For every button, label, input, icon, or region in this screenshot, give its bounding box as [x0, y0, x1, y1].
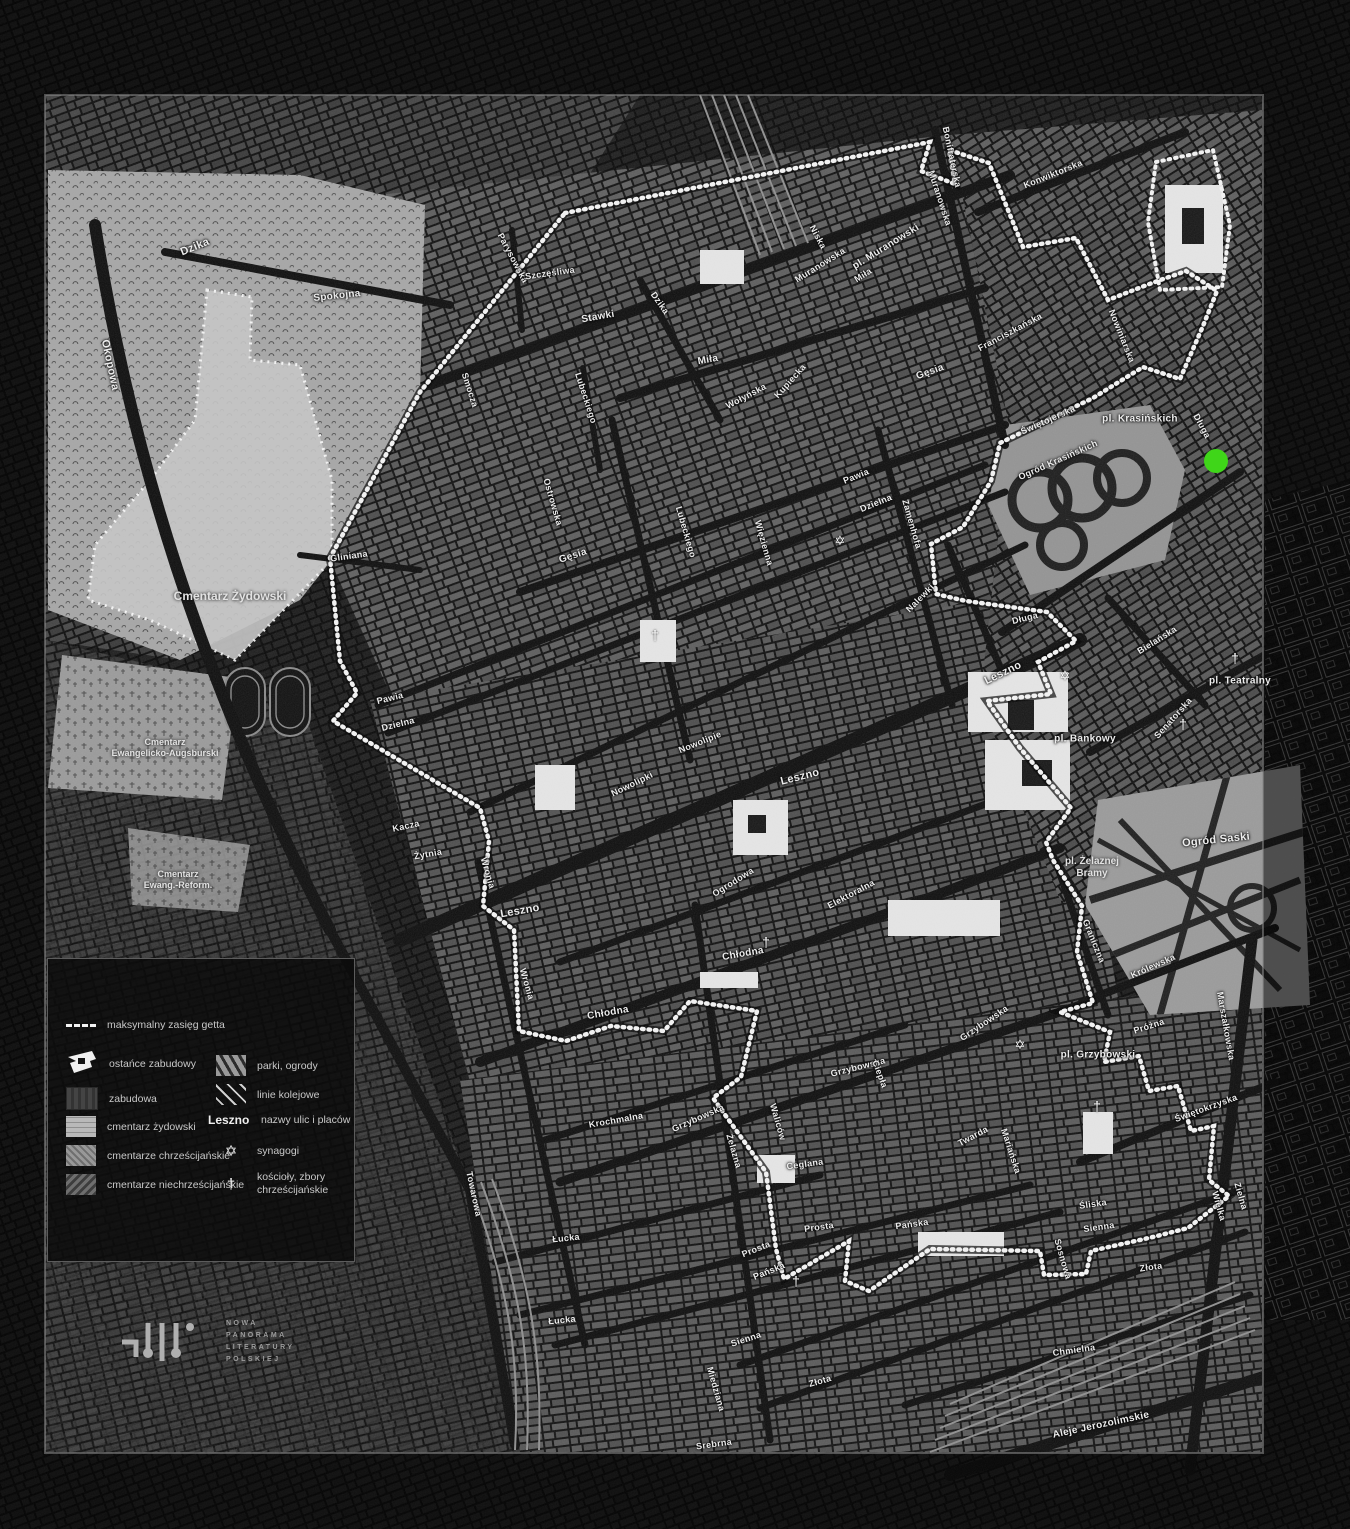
legend-label: maksymalny zasięg getta [107, 1019, 225, 1031]
legend-label: kościoły, zbory chrześcijańskie [257, 1171, 344, 1197]
nplp-logo-text: NOWA PANORAMA LITERATURY POLSKIEJ [226, 1318, 295, 1366]
legend-item-ghetto-extent: maksymalny zasięg getta [66, 1019, 225, 1031]
legend-label: synagogi [257, 1145, 299, 1157]
legend-swatch-parki-ogrody [216, 1055, 246, 1076]
legend-item-zabudowa: zabudowa [66, 1087, 157, 1110]
logo-line: PANORAMA [226, 1330, 295, 1342]
legend-item-synagogi: ✡ synagogi [216, 1142, 299, 1160]
logo-line: LITERATURY [226, 1342, 295, 1354]
legend-item-nazwy-ulic: Leszno nazwy ulic i placów [208, 1113, 350, 1127]
legend-panel: maksymalny zasięg getta ostańce zabudowy… [47, 958, 355, 1262]
legend-swatch-cmentarz-zydowski [66, 1116, 96, 1137]
legend-item-parki-ogrody: parki, ogrody [216, 1055, 318, 1076]
location-marker[interactable] [1204, 449, 1228, 473]
nplp-logo-glyphs [118, 1319, 210, 1365]
legend-item-ostance: ostańce zabudowy [66, 1049, 196, 1078]
nplp-logo: NOWA PANORAMA LITERATURY POLSKIEJ [118, 1318, 295, 1366]
legend-swatch-zabudowa [66, 1087, 98, 1110]
cross-icon: † [216, 1176, 246, 1193]
legend-label: nazwy ulic i placów [261, 1114, 350, 1126]
legend-label: parki, ogrody [257, 1060, 318, 1072]
logo-line: NOWA [226, 1318, 295, 1330]
star-of-david-icon: ✡ [216, 1142, 246, 1160]
logo-line: POLSKIEJ [226, 1354, 295, 1366]
legend-label: cmentarze chrześcijańskie [107, 1150, 230, 1162]
legend-swatch-linie-kolejowe [216, 1084, 246, 1105]
legend-swatch-ghetto-extent [66, 1024, 96, 1027]
legend-item-cmentarze-chrzescijanskie: cmentarze chrześcijańskie [66, 1145, 230, 1166]
legend-sample-street-name: Leszno [208, 1113, 250, 1127]
legend-swatch-cmentarze-niechrzescijanskie [66, 1174, 96, 1195]
legend-label: linie kolejowe [257, 1089, 319, 1101]
legend-item-koscioly: † kościoły, zbory chrześcijańskie [216, 1171, 344, 1197]
legend-label: cmentarz żydowski [107, 1121, 196, 1133]
legend-item-linie-kolejowe: linie kolejowe [216, 1084, 319, 1105]
legend-swatch-ostance [66, 1049, 98, 1078]
legend-swatch-cmentarze-chrzescijanskie [66, 1145, 96, 1166]
warsaw-ghetto-map: DzikaOkopowaSpokojnaParysowskaSzczęśliwa… [0, 0, 1350, 1529]
legend-item-cmentarz-zydowski: cmentarz żydowski [66, 1116, 196, 1137]
map-canvas [0, 0, 1350, 1529]
legend-label: zabudowa [109, 1093, 157, 1105]
legend-label: ostańce zabudowy [109, 1058, 196, 1070]
